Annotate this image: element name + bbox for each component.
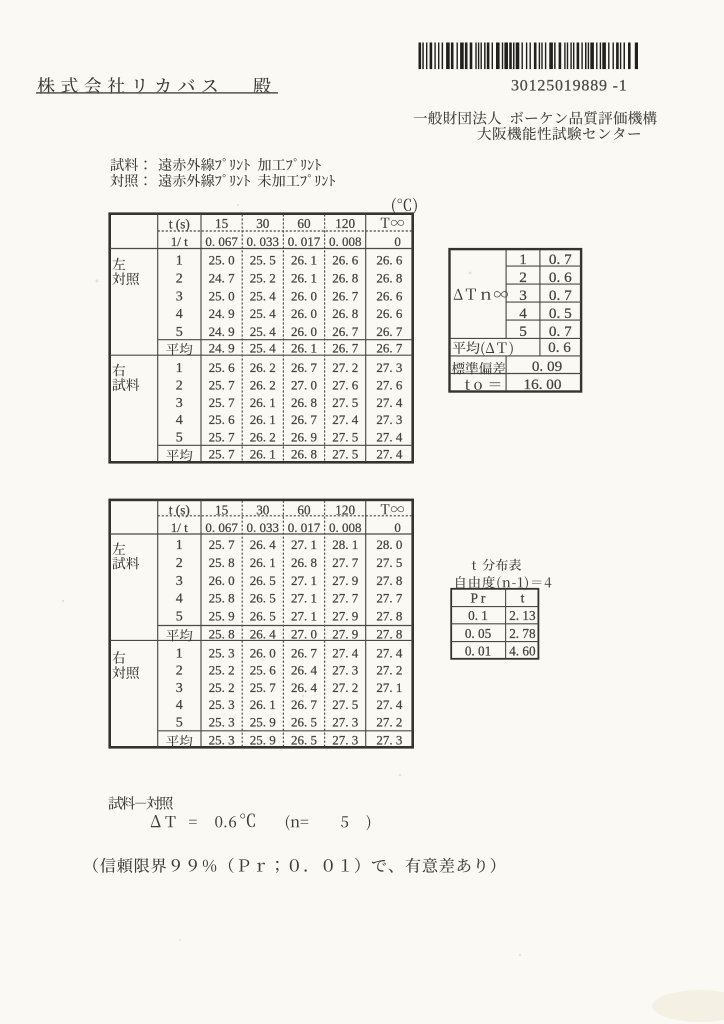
- svg-text:0. 01: 0. 01: [465, 644, 491, 659]
- svg-text:26. 7: 26. 7: [291, 645, 318, 660]
- svg-text:26. 7: 26. 7: [376, 340, 403, 355]
- svg-text:1: 1: [176, 538, 183, 553]
- svg-text:60: 60: [297, 502, 311, 517]
- svg-text:27. 4: 27. 4: [332, 412, 359, 427]
- svg-text:26. 4: 26. 4: [250, 537, 277, 552]
- svg-text:25. 6: 25. 6: [209, 412, 236, 427]
- svg-text:2: 2: [176, 271, 183, 286]
- svg-text:1: 1: [519, 251, 527, 268]
- svg-text:P r: P r: [471, 591, 486, 606]
- svg-text:27. 6: 27. 6: [332, 377, 359, 392]
- svg-text:0. 6: 0. 6: [548, 339, 571, 356]
- svg-text:27. 2: 27. 2: [376, 663, 402, 678]
- svg-text:2: 2: [176, 664, 183, 679]
- svg-text:1/ t: 1/ t: [171, 520, 188, 535]
- svg-text:4: 4: [176, 592, 183, 607]
- svg-text:25. 7: 25. 7: [250, 680, 277, 695]
- svg-text:4: 4: [176, 413, 183, 428]
- svg-text:27. 1: 27. 1: [291, 573, 317, 588]
- svg-text:26. 1: 26. 1: [250, 412, 276, 427]
- svg-text:1: 1: [176, 254, 183, 269]
- svg-text:24. 9: 24. 9: [209, 324, 235, 339]
- svg-text:26. 6: 26. 6: [376, 253, 403, 268]
- svg-text:4: 4: [519, 305, 527, 322]
- svg-text:26. 5: 26. 5: [250, 573, 276, 588]
- svg-text:27. 7: 27. 7: [332, 591, 359, 606]
- svg-text:25. 6: 25. 6: [209, 360, 236, 375]
- svg-text:26. 1: 26. 1: [250, 697, 276, 712]
- svg-text:26. 0: 26. 0: [291, 324, 317, 339]
- svg-text:5: 5: [519, 323, 527, 340]
- svg-text:3: 3: [176, 396, 183, 411]
- svg-text:25. 4: 25. 4: [250, 340, 277, 355]
- svg-text:26. 2: 26. 2: [250, 377, 276, 392]
- svg-text:1: 1: [176, 361, 183, 376]
- svg-text:0. 017: 0. 017: [288, 520, 321, 535]
- svg-text:27. 7: 27. 7: [376, 591, 403, 606]
- svg-text:27. 2: 27. 2: [332, 680, 358, 695]
- svg-text:25. 2: 25. 2: [209, 663, 235, 678]
- svg-text:27. 4: 27. 4: [376, 697, 403, 712]
- svg-text:0: 0: [394, 520, 401, 535]
- svg-text:27. 3: 27. 3: [376, 732, 402, 747]
- svg-text:25. 3: 25. 3: [209, 645, 235, 660]
- svg-text:26. 5: 26. 5: [291, 715, 317, 730]
- svg-text:27. 4: 27. 4: [376, 430, 403, 445]
- svg-text:27. 4: 27. 4: [376, 446, 403, 461]
- svg-text:26. 6: 26. 6: [376, 288, 403, 303]
- svg-text:0. 6: 0. 6: [549, 269, 572, 286]
- svg-text:27. 3: 27. 3: [376, 412, 402, 427]
- svg-text:27. 3: 27. 3: [376, 360, 402, 375]
- svg-text:0. 067: 0. 067: [205, 234, 238, 249]
- svg-text:0. 7: 0. 7: [549, 323, 572, 340]
- svg-text:26. 4: 26. 4: [250, 626, 277, 641]
- svg-text:26. 7: 26. 7: [291, 360, 318, 375]
- svg-text:26. 4: 26. 4: [291, 663, 318, 678]
- svg-text:27. 4: 27. 4: [332, 645, 359, 660]
- svg-text:25. 9: 25. 9: [209, 609, 235, 624]
- svg-text:27. 8: 27. 8: [376, 626, 402, 641]
- svg-text:25. 7: 25. 7: [209, 537, 236, 552]
- svg-text:2. 13: 2. 13: [509, 608, 536, 623]
- svg-text:0. 5: 0. 5: [549, 305, 572, 322]
- svg-text:3: 3: [176, 681, 183, 696]
- svg-text:26. 7: 26. 7: [376, 324, 403, 339]
- svg-text:26. 4: 26. 4: [291, 680, 318, 695]
- svg-text:26. 7: 26. 7: [291, 697, 318, 712]
- svg-text:26. 2: 26. 2: [250, 360, 276, 375]
- svg-text:27. 0: 27. 0: [291, 377, 317, 392]
- svg-text:4. 60: 4. 60: [509, 644, 536, 659]
- svg-text:1: 1: [176, 646, 183, 661]
- svg-text:27. 7: 27. 7: [332, 555, 359, 570]
- svg-text:27. 9: 27. 9: [332, 626, 358, 641]
- svg-text:25. 3: 25. 3: [209, 715, 235, 730]
- svg-text:27. 9: 27. 9: [332, 573, 358, 588]
- svg-text:5: 5: [176, 431, 183, 446]
- svg-text:27. 1: 27. 1: [376, 680, 402, 695]
- svg-text:t: t: [521, 591, 525, 606]
- svg-text:2: 2: [176, 378, 183, 393]
- svg-text:25. 8: 25. 8: [209, 626, 235, 641]
- svg-text:0. 008: 0. 008: [329, 520, 362, 535]
- svg-text:25. 9: 25. 9: [250, 732, 276, 747]
- svg-text:0. 7: 0. 7: [549, 251, 572, 268]
- svg-text:25. 2: 25. 2: [250, 270, 276, 285]
- svg-text:0. 008: 0. 008: [329, 234, 362, 249]
- svg-text:27. 2: 27. 2: [332, 360, 358, 375]
- svg-text:27. 8: 27. 8: [376, 609, 402, 624]
- svg-text:25. 4: 25. 4: [250, 324, 277, 339]
- svg-text:27. 5: 27. 5: [376, 555, 402, 570]
- svg-text:27. 1: 27. 1: [291, 537, 317, 552]
- svg-text:26. 0: 26. 0: [291, 288, 317, 303]
- svg-text:24. 7: 24. 7: [209, 270, 236, 285]
- svg-text:0. 09: 0. 09: [532, 358, 562, 375]
- svg-text:25. 4: 25. 4: [250, 306, 277, 321]
- svg-text:25. 3: 25. 3: [209, 732, 235, 747]
- svg-text:26. 1: 26. 1: [250, 395, 276, 410]
- svg-text:27. 5: 27. 5: [332, 446, 358, 461]
- svg-text:0: 0: [394, 234, 401, 249]
- svg-text:27. 1: 27. 1: [291, 591, 317, 606]
- svg-text:26. 8: 26. 8: [291, 446, 317, 461]
- svg-text:0. 033: 0. 033: [247, 234, 280, 249]
- svg-text:26. 2: 26. 2: [250, 430, 276, 445]
- svg-text:16. 00: 16. 00: [524, 376, 562, 393]
- svg-text:25. 8: 25. 8: [209, 591, 235, 606]
- svg-text:2: 2: [519, 269, 527, 286]
- svg-text:26. 1: 26. 1: [291, 270, 317, 285]
- svg-text:3: 3: [519, 287, 527, 304]
- svg-text:120: 120: [335, 502, 355, 517]
- svg-text:25. 7: 25. 7: [209, 395, 236, 410]
- svg-text:26. 8: 26. 8: [291, 555, 317, 570]
- svg-text:25. 7: 25. 7: [209, 377, 236, 392]
- svg-text:25. 0: 25. 0: [209, 288, 235, 303]
- svg-text:25. 6: 25. 6: [250, 663, 277, 678]
- svg-text:26. 5: 26. 5: [250, 609, 276, 624]
- svg-text:26. 7: 26. 7: [291, 412, 318, 427]
- svg-text:25. 0: 25. 0: [209, 253, 235, 268]
- svg-text:26. 8: 26. 8: [332, 270, 358, 285]
- svg-text:27. 5: 27. 5: [332, 697, 358, 712]
- svg-text:26. 1: 26. 1: [250, 446, 276, 461]
- svg-text:26. 7: 26. 7: [332, 340, 359, 355]
- svg-text:27. 5: 27. 5: [332, 430, 358, 445]
- svg-text:27. 3: 27. 3: [332, 715, 358, 730]
- svg-text:26. 0: 26. 0: [291, 306, 317, 321]
- svg-text:25. 5: 25. 5: [250, 253, 276, 268]
- svg-text:26. 6: 26. 6: [376, 306, 403, 321]
- svg-text:26. 5: 26. 5: [291, 732, 317, 747]
- svg-text:26. 5: 26. 5: [250, 591, 276, 606]
- svg-text:0. 017: 0. 017: [288, 234, 321, 249]
- svg-text:60: 60: [297, 216, 311, 231]
- svg-text:0. 7: 0. 7: [549, 287, 572, 304]
- svg-text:26. 1: 26. 1: [291, 253, 317, 268]
- svg-text:t (s): t (s): [169, 216, 190, 231]
- svg-text:5: 5: [176, 325, 183, 340]
- svg-text:3: 3: [176, 574, 183, 589]
- svg-text:27. 4: 27. 4: [376, 645, 403, 660]
- svg-text:1/ t: 1/ t: [171, 234, 188, 249]
- svg-text:30: 30: [256, 502, 270, 517]
- svg-text:26. 9: 26. 9: [291, 430, 317, 445]
- svg-text:25. 8: 25. 8: [209, 555, 235, 570]
- svg-text:28. 0: 28. 0: [376, 537, 402, 552]
- svg-text:4: 4: [176, 698, 183, 713]
- svg-text:25. 7: 25. 7: [209, 430, 236, 445]
- svg-text:120: 120: [335, 216, 355, 231]
- svg-text:3: 3: [176, 289, 183, 304]
- svg-text:26. 8: 26. 8: [291, 395, 317, 410]
- svg-text:27. 0: 27. 0: [291, 626, 317, 641]
- svg-text:4: 4: [176, 307, 183, 322]
- svg-text:15: 15: [215, 216, 229, 231]
- svg-text:0. 05: 0. 05: [465, 626, 492, 641]
- svg-text:27. 3: 27. 3: [332, 732, 358, 747]
- svg-text:28. 1: 28. 1: [332, 537, 358, 552]
- svg-text:5: 5: [176, 610, 183, 625]
- svg-text:26. 7: 26. 7: [332, 324, 359, 339]
- svg-text:30125019889 -1: 30125019889 -1: [511, 78, 628, 95]
- svg-text:26. 1: 26. 1: [291, 340, 317, 355]
- svg-text:25. 4: 25. 4: [250, 288, 277, 303]
- svg-text:30: 30: [256, 216, 270, 231]
- svg-text:25. 9: 25. 9: [250, 715, 276, 730]
- svg-text:2: 2: [176, 556, 183, 571]
- svg-text:24. 9: 24. 9: [209, 340, 235, 355]
- svg-text:27. 3: 27. 3: [332, 663, 358, 678]
- svg-text:26. 0: 26. 0: [250, 645, 276, 660]
- svg-text:26. 0: 26. 0: [209, 573, 235, 588]
- svg-text:27. 2: 27. 2: [376, 715, 402, 730]
- svg-text:2. 78: 2. 78: [509, 626, 536, 641]
- svg-text:25. 2: 25. 2: [209, 680, 235, 695]
- svg-text:26. 8: 26. 8: [332, 306, 358, 321]
- svg-text:0. 067: 0. 067: [205, 520, 238, 535]
- svg-text:27. 4: 27. 4: [376, 395, 403, 410]
- svg-text:26. 7: 26. 7: [332, 288, 359, 303]
- svg-text:25. 7: 25. 7: [209, 446, 236, 461]
- svg-text:26. 1: 26. 1: [250, 555, 276, 570]
- svg-text:t (s): t (s): [169, 503, 190, 518]
- svg-text:27. 8: 27. 8: [376, 573, 402, 588]
- svg-text:0. 033: 0. 033: [247, 520, 280, 535]
- svg-text:15: 15: [215, 502, 229, 517]
- svg-text:26. 6: 26. 6: [332, 253, 359, 268]
- svg-text:26. 8: 26. 8: [376, 270, 402, 285]
- svg-text:5: 5: [176, 716, 183, 731]
- svg-text:27. 6: 27. 6: [376, 377, 403, 392]
- svg-text:27. 5: 27. 5: [332, 395, 358, 410]
- svg-text:27. 9: 27. 9: [332, 609, 358, 624]
- svg-text:25. 3: 25. 3: [209, 697, 235, 712]
- svg-text:0. 1: 0. 1: [468, 608, 488, 623]
- svg-text:27. 1: 27. 1: [291, 609, 317, 624]
- svg-text:24. 9: 24. 9: [209, 306, 235, 321]
